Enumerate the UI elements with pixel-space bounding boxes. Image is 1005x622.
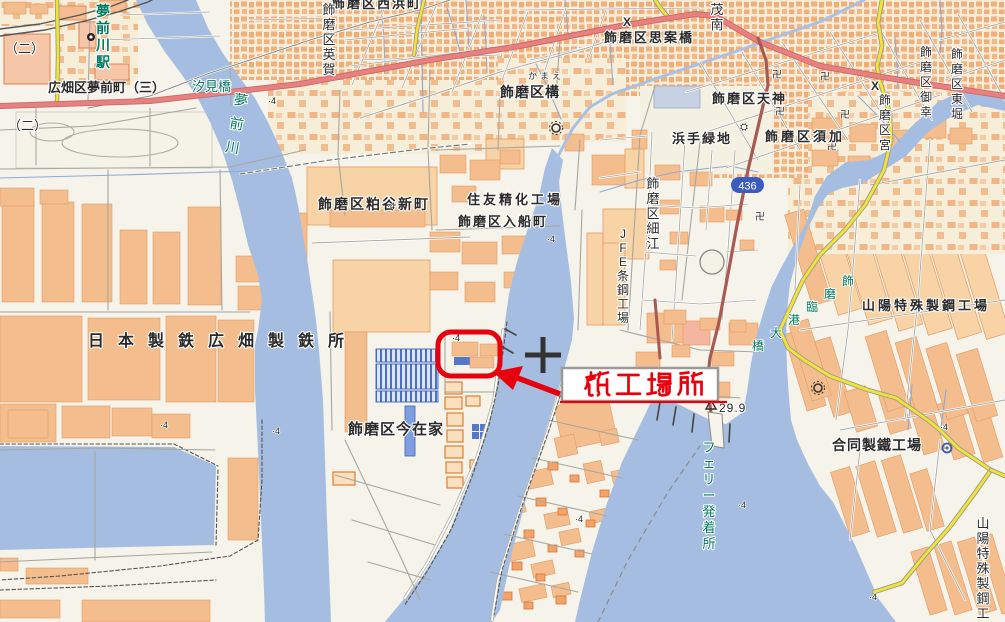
- svg-text:御: 御: [920, 89, 932, 104]
- svg-text:駅: 駅: [96, 54, 111, 70]
- svg-text:磨: 磨: [322, 17, 335, 32]
- svg-text:賀: 賀: [322, 62, 335, 77]
- svg-text:川: 川: [224, 138, 241, 156]
- svg-text:場: 場: [617, 311, 629, 325]
- svg-text:卍: 卍: [772, 69, 782, 81]
- svg-text:工: 工: [976, 606, 989, 621]
- svg-text:飾: 飾: [879, 93, 891, 107]
- svg-text:夢: 夢: [233, 91, 250, 109]
- svg-text:·4: ·4: [160, 420, 168, 430]
- svg-text:（二）: （二）: [8, 118, 47, 133]
- svg-text:飾: 飾: [646, 176, 659, 191]
- svg-text:鋼: 鋼: [617, 283, 629, 297]
- svg-text:所: 所: [702, 536, 715, 551]
- svg-text:条: 条: [617, 269, 629, 283]
- svg-text:発: 発: [702, 504, 715, 519]
- svg-text:436: 436: [738, 181, 756, 193]
- svg-text:前: 前: [96, 20, 110, 36]
- svg-text:区: 区: [646, 206, 659, 221]
- svg-text:川: 川: [95, 37, 110, 53]
- svg-text:区: 区: [322, 32, 335, 47]
- svg-text:飾磨区西浜町: 飾磨区西浜町: [332, 0, 422, 11]
- svg-text:·4: ·4: [268, 96, 276, 106]
- svg-text:合同製鐵工場: 合同製鐵工場: [832, 437, 922, 453]
- svg-text:細: 細: [646, 221, 659, 236]
- svg-text:飾磨区須加: 飾磨区須加: [765, 129, 845, 144]
- svg-text:リ: リ: [702, 472, 715, 487]
- svg-text:飾: 飾: [322, 2, 335, 17]
- svg-text:飾磨区入船町: 飾磨区入船町: [458, 214, 548, 229]
- svg-text:·4: ·4: [940, 422, 948, 432]
- svg-text:·4: ·4: [272, 426, 280, 436]
- svg-text:山: 山: [976, 516, 989, 531]
- svg-text:·4: ·4: [575, 514, 583, 524]
- svg-text:着: 着: [702, 520, 715, 535]
- svg-text:飾: 飾: [951, 47, 963, 61]
- svg-text:幸: 幸: [920, 105, 932, 119]
- svg-text:卍: 卍: [755, 211, 765, 223]
- svg-text:東: 東: [951, 92, 963, 106]
- svg-text:磨: 磨: [646, 191, 659, 206]
- svg-text:卍: 卍: [840, 109, 850, 121]
- svg-text:港: 港: [788, 313, 800, 327]
- svg-text:·4: ·4: [738, 500, 746, 510]
- svg-text:堀: 堀: [951, 106, 963, 121]
- svg-text:鋼: 鋼: [976, 591, 989, 606]
- svg-text:飾磨区天神: 飾磨区天神: [712, 91, 787, 106]
- svg-text:汐見橋: 汐見橋: [192, 79, 231, 94]
- svg-text:ー: ー: [702, 488, 715, 503]
- svg-text:茂: 茂: [710, 2, 723, 17]
- svg-text:ェ: ェ: [702, 456, 715, 471]
- svg-text:E: E: [619, 255, 627, 269]
- svg-text:磨: 磨: [824, 287, 836, 301]
- svg-text:飾磨区今在家: 飾磨区今在家: [348, 420, 444, 438]
- svg-text:臨: 臨: [806, 300, 818, 314]
- svg-text:製: 製: [976, 576, 989, 591]
- svg-text:広畑区夢前町（三）: 広畑区夢前町（三）: [48, 80, 165, 95]
- svg-text:陽: 陽: [976, 531, 989, 546]
- svg-text:区: 区: [951, 77, 963, 91]
- svg-text:⛭: ⛭: [740, 122, 748, 133]
- svg-text:山陽特殊製鋼工場: 山陽特殊製鋼工場: [862, 298, 990, 313]
- svg-text:卍: 卍: [820, 71, 830, 83]
- svg-text:磨: 磨: [951, 62, 963, 76]
- svg-text:卍: 卍: [775, 106, 785, 118]
- svg-text:J: J: [620, 227, 626, 241]
- svg-text:前: 前: [228, 115, 245, 133]
- svg-text:X: X: [871, 79, 879, 93]
- svg-text:·4: ·4: [547, 234, 555, 244]
- svg-text:区: 区: [879, 123, 891, 137]
- svg-text:かまえ: かまえ: [528, 71, 564, 81]
- svg-text:日本製鉄広畑製鉄所: 日本製鉄広畑製鉄所: [88, 331, 358, 350]
- svg-text:·4: ·4: [869, 592, 877, 602]
- svg-text:X: X: [623, 15, 631, 29]
- svg-text:磨: 磨: [879, 108, 891, 122]
- svg-text:（二）: （二）: [5, 41, 44, 56]
- svg-text:飾磨区思案橋: 飾磨区思案橋: [604, 30, 694, 45]
- svg-text:フ: フ: [702, 440, 715, 455]
- svg-text:英: 英: [322, 47, 335, 62]
- svg-text:江: 江: [646, 236, 659, 251]
- svg-text:南: 南: [710, 17, 723, 32]
- svg-text:磨: 磨: [920, 60, 932, 74]
- svg-text:区: 区: [920, 75, 932, 89]
- svg-text:特: 特: [976, 546, 989, 561]
- svg-text:住友精化工場: 住友精化工場: [467, 192, 563, 207]
- svg-text:橋: 橋: [752, 339, 764, 353]
- svg-text:F: F: [619, 241, 626, 255]
- svg-text:飾: 飾: [842, 274, 854, 288]
- svg-text:工: 工: [617, 297, 629, 311]
- svg-text:飾磨区構: 飾磨区構: [500, 84, 560, 100]
- svg-text:·4: ·4: [387, 201, 395, 211]
- svg-text:浜手緑地: 浜手緑地: [672, 131, 732, 146]
- svg-text:夢: 夢: [96, 3, 110, 19]
- svg-text:殊: 殊: [976, 561, 989, 576]
- svg-text:飾磨区粕谷新町: 飾磨区粕谷新町: [318, 196, 430, 212]
- svg-text:飾: 飾: [920, 45, 932, 59]
- svg-text:大: 大: [770, 326, 782, 340]
- svg-text:宮: 宮: [879, 137, 891, 152]
